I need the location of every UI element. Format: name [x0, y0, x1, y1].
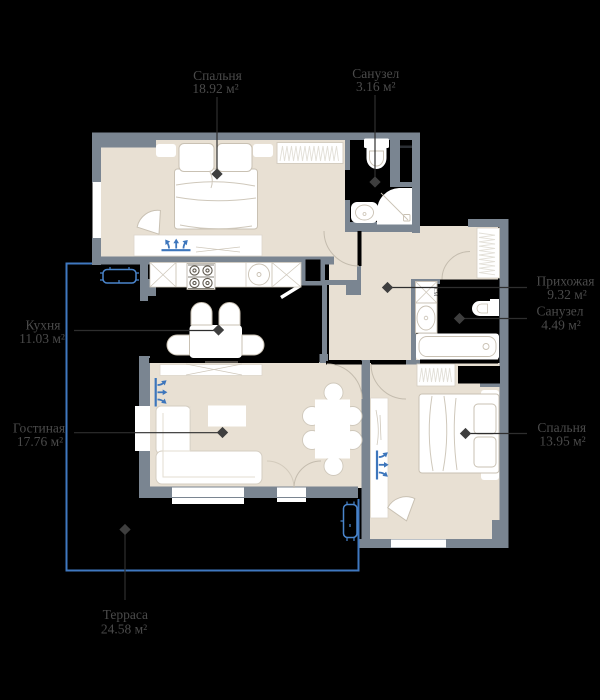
svg-text:13.95 м²: 13.95 м²	[539, 434, 585, 449]
svg-text:СМ: СМ	[432, 288, 438, 297]
svg-text:Санузел: Санузел	[536, 304, 583, 319]
svg-text:18.92 м²: 18.92 м²	[192, 81, 238, 96]
svg-text:3.16 м²: 3.16 м²	[356, 79, 396, 94]
svg-text:17.76 м²: 17.76 м²	[17, 434, 63, 449]
svg-text:11.03 м²: 11.03 м²	[19, 331, 65, 346]
svg-text:9.32 м²: 9.32 м²	[547, 287, 587, 302]
svg-text:Терраса: Терраса	[103, 607, 148, 622]
svg-text:4.49 м²: 4.49 м²	[541, 318, 581, 333]
svg-text:24.58 м²: 24.58 м²	[101, 622, 147, 637]
